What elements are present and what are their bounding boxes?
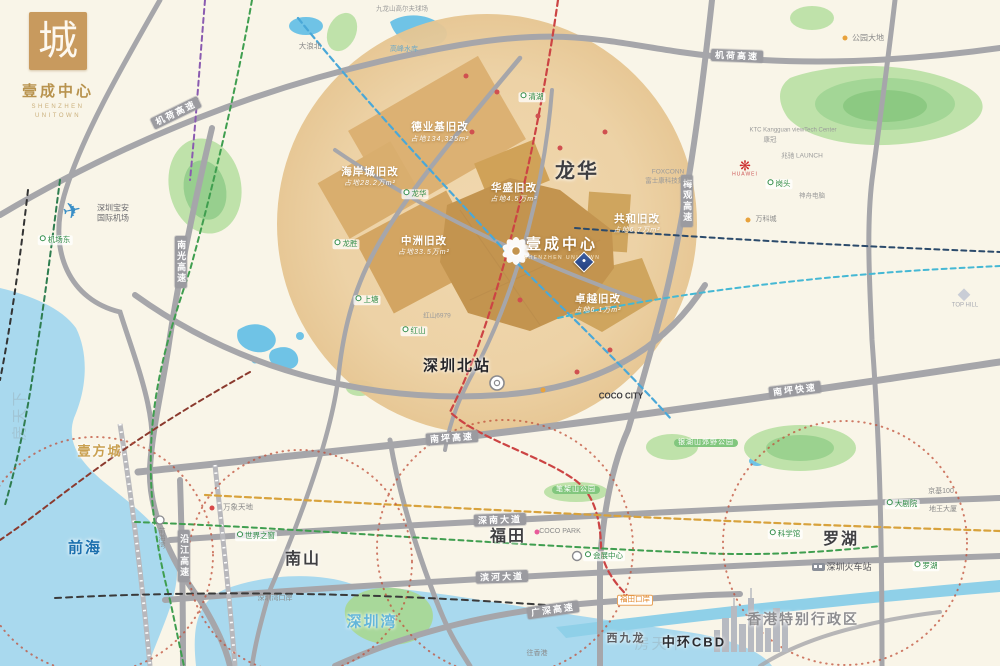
dots-label: [535, 530, 540, 535]
redev-label: 华盛旧改: [491, 182, 537, 194]
redev-label: 占地4.5万m²: [491, 196, 538, 204]
dots-label: [495, 90, 500, 95]
district-luohu: 罗湖: [823, 531, 859, 549]
dots-label: [470, 130, 475, 135]
dots-label: [541, 388, 546, 393]
train-station-icon: [812, 563, 825, 571]
district-qianhai: 前海: [68, 539, 102, 556]
stations-label: 岗头: [766, 179, 793, 189]
pills-label: 笔架山公园: [552, 486, 600, 494]
watermarks-label: 房天下: [11, 389, 28, 440]
dots-label: [536, 114, 541, 119]
redev-label: 德业基旧改: [411, 121, 469, 133]
small-label: 大浪北: [299, 43, 322, 52]
brand-name-en2: UNITOWN: [10, 113, 106, 119]
redev-label: 中洲旧改: [401, 235, 447, 247]
small-label: 公园大地: [852, 33, 884, 42]
shenzhen-bay: 深圳湾: [346, 613, 397, 630]
dots-label: [575, 370, 580, 375]
small-label: 深圳火车站: [826, 562, 871, 572]
dots-label: [843, 36, 848, 41]
stations-label: 机场东: [38, 235, 73, 245]
small-label: 国际机场: [97, 213, 129, 222]
dots-label: [464, 74, 469, 79]
dots-label: [746, 218, 751, 223]
location-map: 城 壹成中心 SHENZHEN UNITOWN 壹成中心 SHENZHEN UN…: [0, 0, 1000, 666]
project-name: 壹成中心: [524, 233, 601, 254]
stations-label: 龙华: [402, 189, 429, 199]
shennan-avenue-label: 深南大道: [474, 513, 526, 527]
small-label: 康冠: [764, 136, 777, 143]
stations-label: 红山: [401, 326, 428, 336]
dots-label: [603, 130, 608, 135]
small-label: 地王大厦: [929, 506, 957, 514]
redev-label: 卓越旧改: [575, 293, 621, 305]
dots-label: [558, 146, 563, 151]
stations-label: 会展中心: [583, 551, 625, 561]
small-label: 富士康科技集团: [645, 177, 691, 184]
brand-logo-icon: 城: [29, 12, 87, 70]
redev-label: 占地28.2万m²: [344, 180, 396, 188]
stations-label: 世界之窗: [235, 531, 277, 541]
small-label: 深圳湾口岸: [258, 595, 293, 603]
tophill-mark: [958, 288, 971, 301]
small-label: KTC Kangguan viewTech Center: [749, 128, 836, 135]
stations-label: 清湖: [519, 92, 546, 102]
small-label: 红山6979: [423, 312, 450, 319]
stations-label: 龙胜: [333, 239, 360, 249]
redev-label: 占地33.5万m²: [398, 249, 450, 257]
redev-label: 占地6.1万m²: [575, 307, 622, 315]
redev-label: 占地6.7万m²: [614, 227, 661, 235]
small-label: 深圳宝安: [97, 203, 129, 212]
dots-label: [518, 298, 523, 303]
small-label: TOP HILL: [952, 303, 978, 310]
small-label: 万象天地: [223, 504, 253, 513]
small-label: COCO PARK: [539, 528, 581, 536]
shenzhen-north-station: 深圳北站: [423, 357, 491, 374]
brand-logo-block: 城 壹成中心 SHENZHEN UNITOWN: [10, 8, 106, 119]
small-label: COCO CITY: [599, 391, 643, 400]
hongkong-sar: 香港特别行政区: [747, 611, 859, 627]
watermarks-label: 房天下: [634, 635, 685, 652]
binhe-avenue-label: 滨河大道: [476, 570, 528, 584]
nanguang-expressway-label: 南光高速: [175, 236, 187, 288]
small-label: 往香港: [527, 650, 548, 658]
uniworld-mall: 壹方城: [77, 445, 122, 460]
redev-label: 海岸城旧改: [341, 166, 399, 178]
jihe-expressway-label: 机荷高速: [711, 49, 763, 63]
dots-label: [210, 506, 215, 511]
district-futian: 福田: [490, 528, 526, 546]
small-label: 兆驰 LAUNCH: [781, 152, 823, 159]
small-label: 万科城: [756, 216, 777, 224]
dots-label: [608, 348, 613, 353]
small-label: 高峰水库: [390, 46, 418, 54]
small-label: 九龙山高尔夫球场: [376, 5, 428, 12]
stations-label: 科学馆: [768, 529, 803, 539]
futian-checkpoint-badge: 福田口岸: [617, 595, 653, 606]
district-longhua: 龙华: [555, 161, 599, 184]
huawei-logo-icon: ❋HUAWEI: [732, 159, 758, 178]
small-label: 京基100: [928, 488, 954, 496]
district-nanshan: 南山: [285, 551, 321, 569]
small-label: 神舟电脑: [799, 192, 825, 199]
redev-label: 共和旧改: [614, 213, 660, 225]
stations-label: 上塘: [354, 295, 381, 305]
redev-label: 占地134,325m²: [411, 136, 469, 144]
pills-label: 银湖山郊野公园: [674, 439, 738, 447]
yanjiang-expressway-label: 沿江高速: [178, 530, 190, 582]
brand-name: 壹成中心: [10, 80, 106, 101]
small-label: FOXCONN: [652, 168, 685, 175]
stations-label: 罗湖: [913, 561, 940, 571]
small-label: 前海湾: [157, 528, 165, 549]
stations-label: 大剧院: [885, 499, 920, 509]
brand-name-en1: SHENZHEN: [10, 104, 106, 110]
